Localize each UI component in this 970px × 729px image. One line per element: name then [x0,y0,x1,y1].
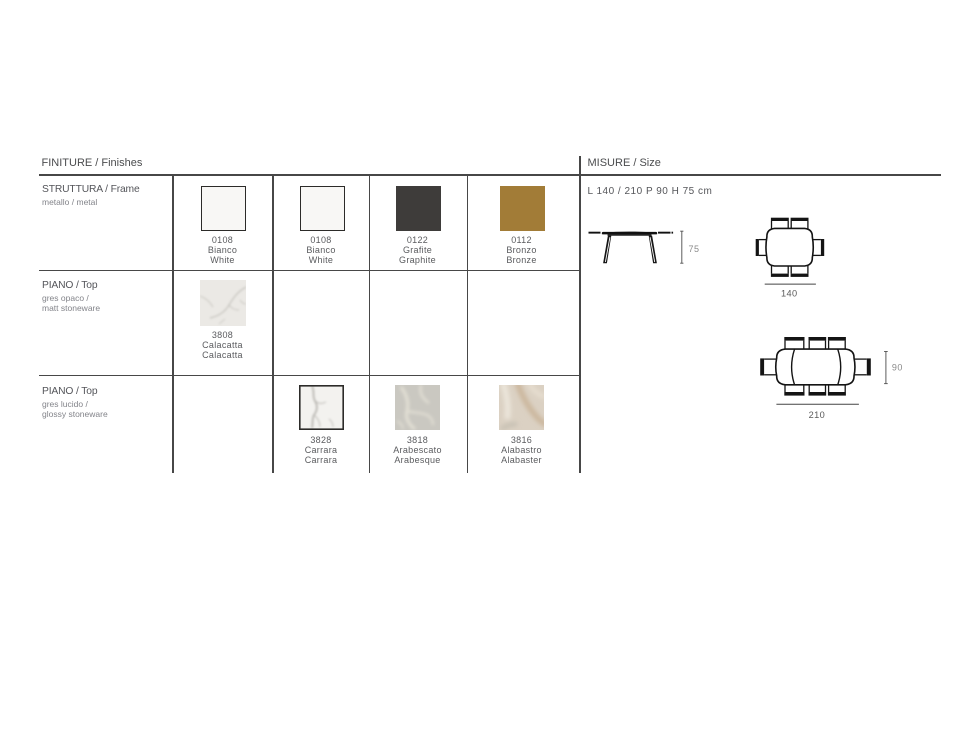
svg-text:90: 90 [892,363,903,373]
svg-text:140: 140 [781,289,798,299]
svg-text:75: 75 [689,244,700,254]
svg-text:210: 210 [809,410,826,420]
